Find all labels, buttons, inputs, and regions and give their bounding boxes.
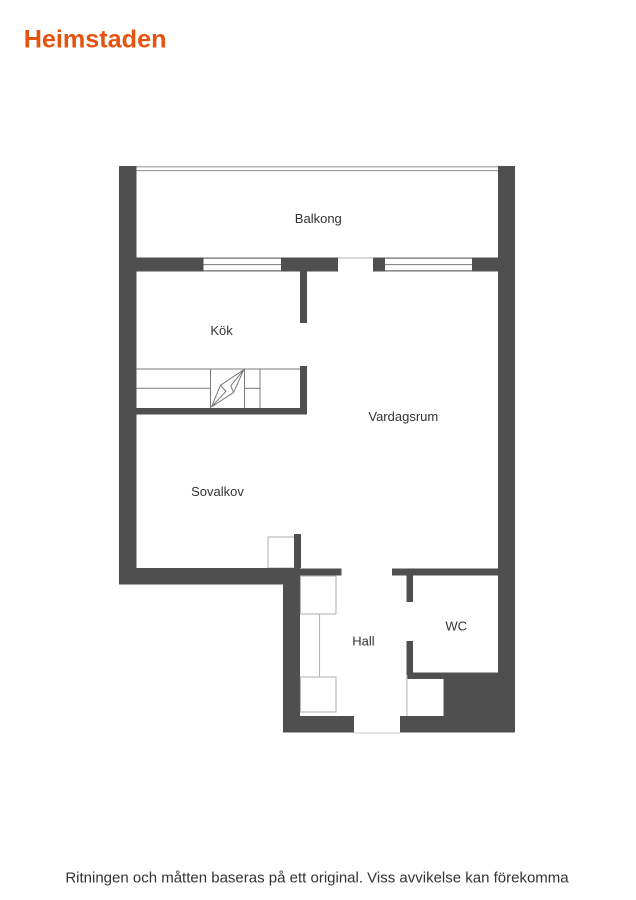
svg-text:Ritningen och måtten baseras p: Ritningen och måtten baseras på ett orig… [65,870,569,887]
svg-text:Vardagsrum: Vardagsrum [368,409,438,424]
svg-text:WC: WC [445,618,467,633]
svg-text:Sovalkov: Sovalkov [191,484,244,499]
svg-text:Balkong: Balkong [295,211,342,226]
svg-text:Hall: Hall [352,634,375,649]
svg-text:Heimstaden: Heimstaden [24,25,167,53]
svg-text:Kök: Kök [210,323,233,338]
